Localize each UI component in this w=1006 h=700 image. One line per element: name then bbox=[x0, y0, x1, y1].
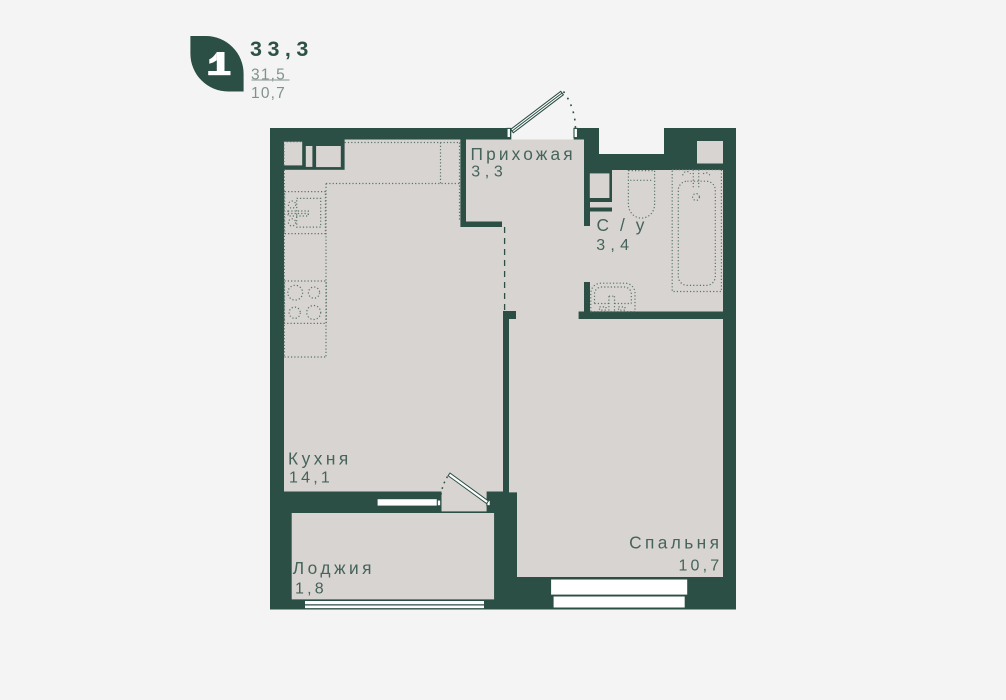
svg-text:Спальня: Спальня bbox=[629, 533, 722, 553]
svg-text:Лоджия: Лоджия bbox=[293, 558, 375, 578]
svg-text:Прихожая: Прихожая bbox=[471, 144, 576, 164]
svg-text:1,8: 1,8 bbox=[295, 581, 327, 598]
svg-text:14,1: 14,1 bbox=[289, 470, 333, 487]
svg-text:С/у: С/у bbox=[597, 215, 656, 235]
svg-text:10,7: 10,7 bbox=[678, 557, 722, 574]
svg-text:31,5: 31,5 bbox=[251, 67, 286, 84]
svg-text:33,3: 33,3 bbox=[250, 37, 314, 61]
svg-text:3,4: 3,4 bbox=[596, 237, 634, 254]
svg-text:3,3: 3,3 bbox=[471, 163, 507, 180]
svg-text:10,7: 10,7 bbox=[251, 85, 286, 102]
svg-text:Кухня: Кухня bbox=[288, 448, 352, 468]
